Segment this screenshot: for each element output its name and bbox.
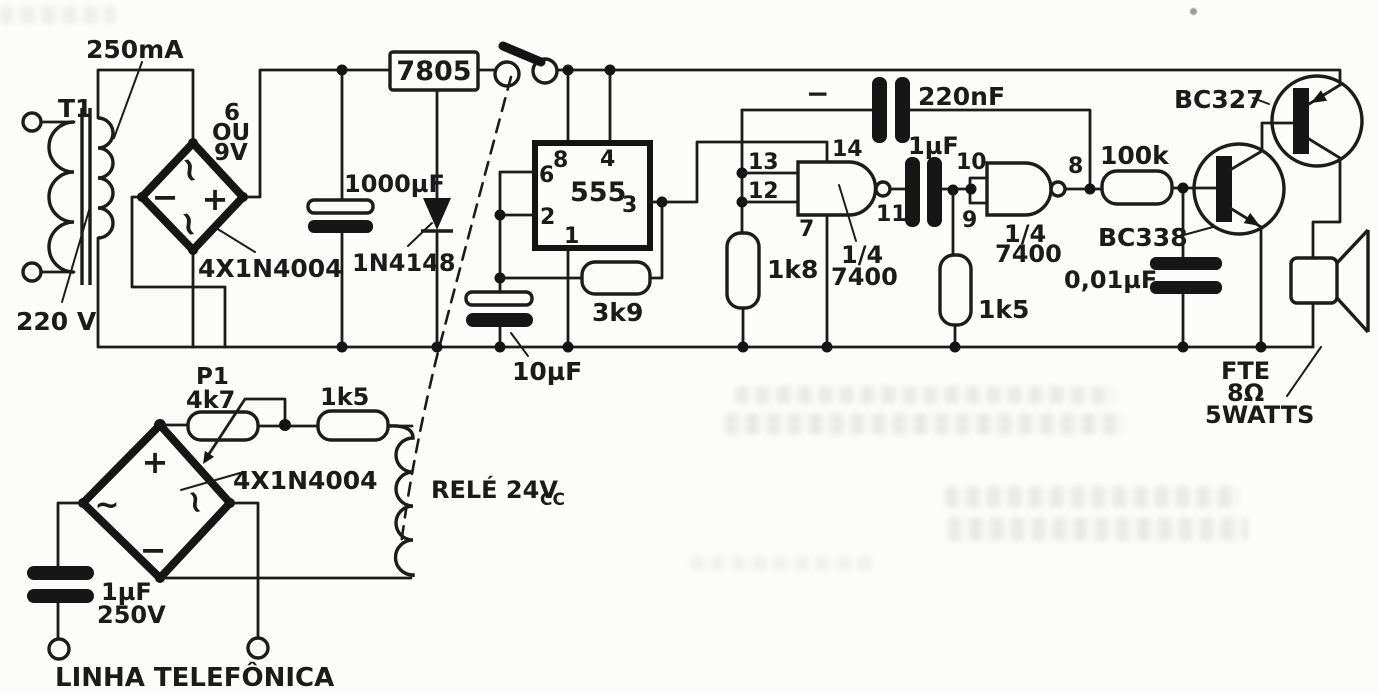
capacitor-220nf-plate (872, 77, 887, 143)
capacitor-10uf-plate (466, 313, 533, 327)
resistor-1k8-body (727, 233, 759, 308)
label-bc338: BC338 (1098, 223, 1188, 252)
telephone-line-section: + − ~ ~ 4X1N4004 P1 4k7 1k5 RELÉ 24V CC (27, 364, 565, 693)
label-relay-subscript: CC (540, 490, 565, 510)
pin-label: 4 (600, 147, 615, 172)
ac-symbol: ~ (94, 488, 119, 523)
label-mains-voltage: 220 V (16, 307, 97, 336)
pin-label: 8 (1068, 154, 1083, 179)
timer-555-label: 555 (570, 177, 626, 208)
power-supply-section: ~ ~ − + 7805 250mA T1 (16, 35, 1340, 347)
nand-gate-1 (798, 162, 876, 215)
diode-1n4148 (423, 198, 451, 230)
label-10uf: 10µF (512, 357, 582, 386)
label-1k5-mid: 1k5 (978, 295, 1029, 324)
label-bridge-line: 4X1N4004 (233, 466, 378, 495)
transformer-t1 (23, 108, 113, 285)
pin-label: 2 (540, 205, 555, 230)
resistor-100k-body (1102, 171, 1172, 204)
resistor-1k5-line-body (318, 411, 388, 440)
regulator-7805-label: 7805 (396, 56, 471, 87)
pin-label: 11 (876, 202, 907, 227)
capacitor-001uf-plate (1150, 257, 1222, 270)
pin-label: 10 (956, 150, 987, 175)
nand-gate-2-bubble (1051, 182, 1065, 196)
plus-symbol: + (202, 180, 229, 218)
nand-gate-2 (987, 163, 1051, 215)
label-linha-telefonica: LINHA TELEFÔNICA (55, 661, 334, 693)
label-gate1-ic: 7400 (831, 263, 898, 291)
label-3k9: 3k9 (592, 298, 643, 327)
line-terminal (49, 639, 69, 659)
gate-section: 1k8 13 12 14 7 11 1/4 7400 − 220nF 1µF (727, 77, 1102, 347)
label-t1: T1 (58, 94, 92, 123)
label-diode-1n4148: 1N4148 (352, 249, 456, 277)
mains-terminal (23, 263, 41, 281)
label-1k5-line: 1k5 (320, 383, 369, 411)
label-current-rating: 250mA (86, 35, 184, 64)
resistor-1k5-body (940, 255, 971, 325)
schematic-page: ~ ~ − + 7805 250mA T1 (0, 0, 1378, 694)
line-terminal (248, 638, 268, 658)
potentiometer-p1-body (188, 412, 258, 440)
relay-coil (388, 426, 413, 577)
label-bridge-main: 4X1N4004 (198, 254, 343, 283)
label-4k7: 4k7 (186, 386, 235, 414)
nand-gate-1-bubble (876, 182, 890, 196)
label-220nf-polarity: − (806, 77, 829, 110)
primary-winding (49, 122, 74, 272)
capacitor-1uf-plate (927, 157, 942, 227)
label-001uf: 0,01µF (1064, 266, 1157, 294)
label-1k8: 1k8 (767, 255, 818, 284)
relay-mechanical-link (401, 77, 511, 545)
capacitor-001uf-plate (1150, 281, 1222, 294)
pin-label: 7 (799, 217, 814, 242)
pin-label: 12 (748, 179, 779, 204)
resistor-3k9-body (582, 262, 650, 294)
label-1uf: 1µF (908, 132, 959, 160)
label-filter-cap: 1000µF (344, 170, 445, 198)
pin-label: 6 (539, 163, 554, 188)
label-secondary-voltage: 9V (214, 140, 248, 166)
minus-symbol: − (152, 178, 179, 216)
label-speaker-watts: 5WATTS (1205, 401, 1314, 429)
label-220nf: 220nF (918, 82, 1005, 111)
capacitor-1uf-line-plate (27, 566, 94, 580)
transistor-bc327 (1272, 76, 1362, 258)
secondary-winding (98, 118, 113, 238)
capacitor-1uf-line-plate (27, 589, 94, 603)
capacitor-1000uf-plate (308, 200, 373, 213)
pin-label: 13 (748, 150, 779, 175)
plus-symbol: + (142, 443, 169, 481)
pin-label: 9 (962, 208, 977, 233)
label-bc327: BC327 (1174, 85, 1264, 114)
capacitor-10uf-plate (466, 292, 532, 305)
circuit-schematic: ~ ~ − + 7805 250mA T1 (0, 0, 1378, 694)
capacitor-1000uf-plate (308, 220, 373, 233)
transistor-bc338 (1194, 123, 1293, 347)
pin-label: 8 (553, 148, 568, 173)
amplifier-section: 100k 0,01µF BC338 BC327 (1064, 76, 1368, 429)
pin-label: 3 (622, 193, 637, 218)
relay-contact-switch (495, 46, 557, 86)
mains-terminal (23, 113, 41, 131)
label-100k: 100k (1100, 141, 1170, 170)
label-250v: 250V (97, 601, 166, 629)
label-gate2-ic: 7400 (995, 240, 1062, 268)
oscillator-section: 555 8 4 6 2 3 1 10µF 3k9 (401, 65, 827, 546)
pin-label: 1 (564, 224, 579, 249)
capacitor-1uf-plate (905, 157, 920, 227)
pin-label: 14 (832, 137, 863, 162)
transformer-core (82, 108, 90, 285)
minus-symbol: − (140, 531, 167, 569)
speaker (1291, 230, 1368, 347)
